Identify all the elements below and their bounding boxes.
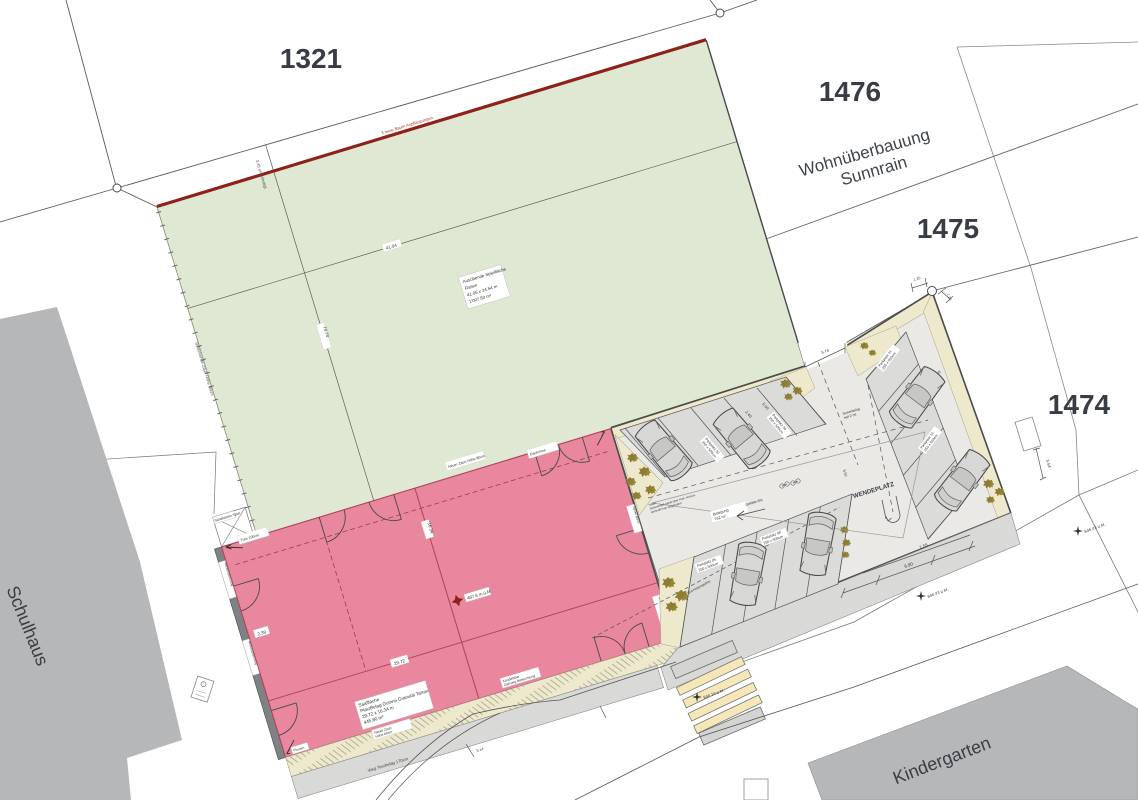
svg-text:1476: 1476: [819, 76, 881, 107]
svg-text:1474: 1474: [1048, 389, 1111, 420]
svg-text:1475: 1475: [917, 213, 979, 244]
svg-text:1321: 1321: [280, 43, 342, 74]
